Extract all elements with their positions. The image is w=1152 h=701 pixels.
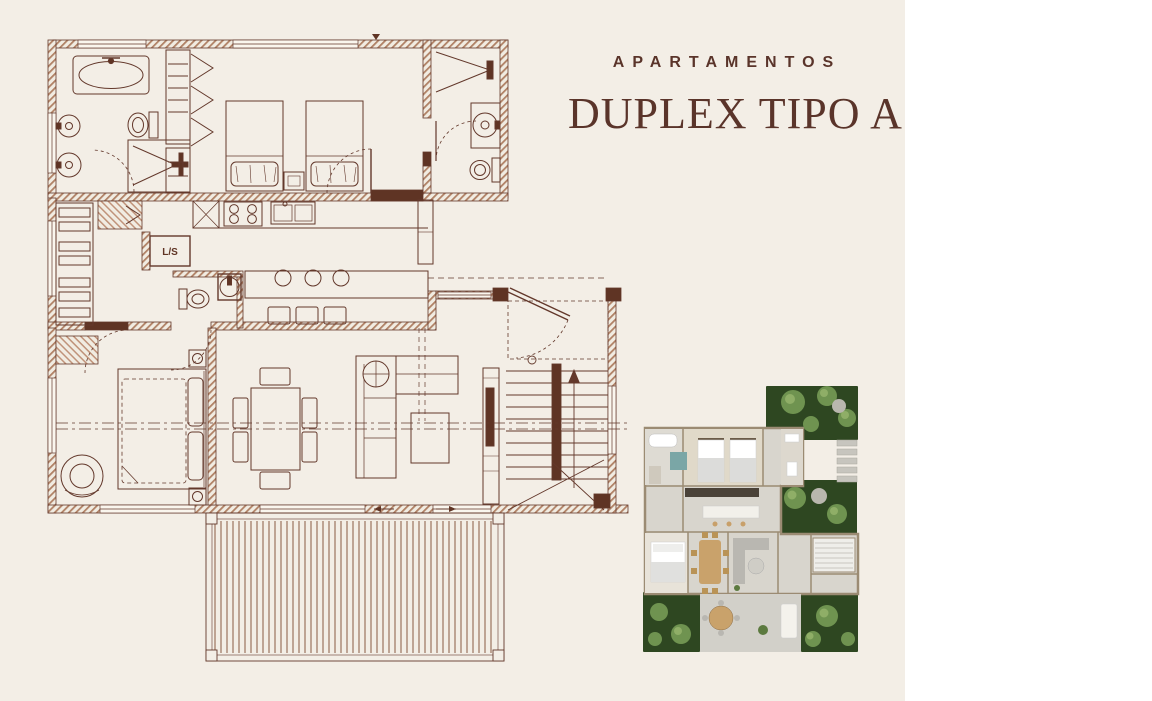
- exterior-steps: [837, 440, 857, 482]
- brochure-sheet: L/S: [0, 0, 905, 701]
- chair: [260, 472, 290, 489]
- bedroom-1: [61, 350, 206, 505]
- hanging-clothes-icon: [191, 54, 213, 146]
- chair: [233, 432, 248, 462]
- nightstand: [284, 172, 304, 190]
- entry-door-leaf: [508, 288, 570, 320]
- bathroom-2: [436, 52, 500, 182]
- render-bathtub: [649, 434, 677, 447]
- render-patio: [700, 594, 801, 652]
- chair: [233, 398, 248, 428]
- render-shower: [670, 452, 687, 470]
- stove-icon: [224, 202, 262, 226]
- floor-plan-drawing: L/S: [38, 26, 638, 686]
- closet: [56, 203, 93, 325]
- nightstand: [189, 488, 206, 505]
- toilet-icon: [179, 289, 209, 309]
- wardrobe: [166, 50, 213, 193]
- living-area: [356, 356, 499, 504]
- bedroom-2: [226, 101, 371, 193]
- garden-stone: [811, 488, 827, 504]
- chair: [302, 398, 317, 428]
- single-bed-icon: [306, 101, 363, 191]
- toilet-icon: [128, 112, 158, 138]
- garden-stone: [832, 399, 846, 413]
- title-block: APARTAMENTOS DUPLEX TIPO A: [568, 54, 878, 139]
- stool: [296, 307, 318, 324]
- kitchen: [193, 200, 606, 324]
- stairs: [506, 288, 610, 510]
- stool: [268, 307, 290, 324]
- tv-console: [483, 368, 499, 504]
- render-stairs: [813, 538, 855, 572]
- render-vanity: [649, 466, 661, 484]
- render-plan-image: [643, 382, 868, 657]
- sink-icon: [473, 113, 497, 137]
- stool: [324, 307, 346, 324]
- title-eyebrow: APARTAMENTOS: [568, 54, 878, 72]
- windows: [48, 40, 616, 513]
- kitchen-island: [245, 270, 428, 324]
- laundry-label: L/S: [162, 247, 178, 258]
- chair: [260, 368, 290, 385]
- page-title: DUPLEX TIPO A: [568, 88, 878, 139]
- single-bed-icon: [226, 101, 283, 191]
- deck: [206, 513, 504, 661]
- walls: [48, 40, 628, 513]
- shower-icon: [436, 52, 493, 92]
- toilet-icon: [470, 158, 500, 182]
- chair: [302, 432, 317, 462]
- door-swing-marker: [372, 34, 380, 40]
- coffee-table: [411, 413, 449, 463]
- armchair-icon: [61, 455, 103, 497]
- entry-porch: [508, 288, 608, 364]
- kitchen-sink-icon: [271, 202, 315, 224]
- dining-area: [233, 368, 317, 489]
- nightstand: [189, 350, 206, 367]
- render-master-bed: [651, 542, 685, 582]
- section-lines: [56, 34, 628, 512]
